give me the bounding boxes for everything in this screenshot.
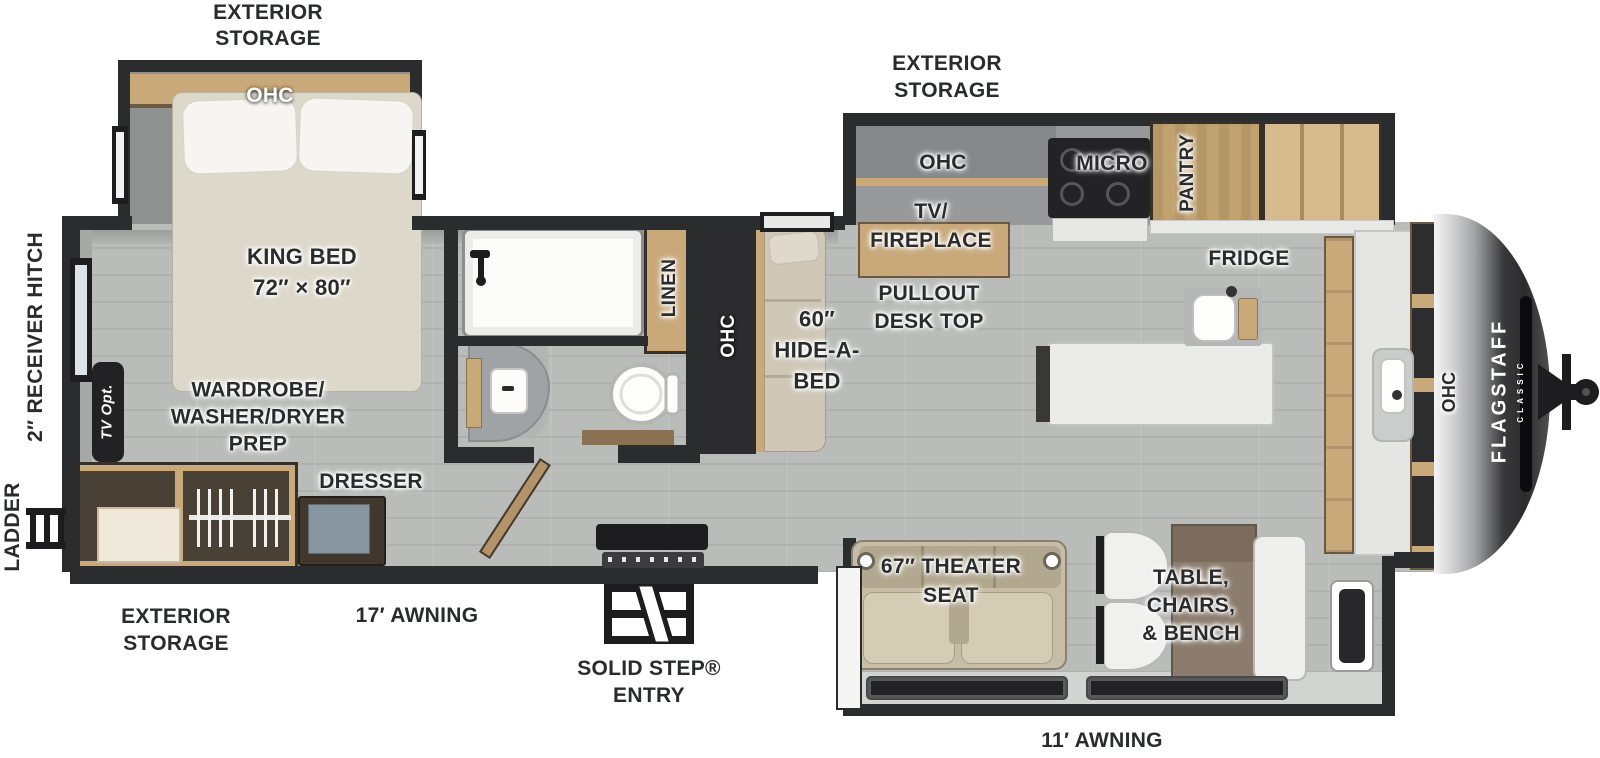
floorplan-diagram: EXTERIOR STORAGE EXTERIOR STORAGE 2″ REC…	[0, 0, 1600, 758]
label-micro: MICRO	[1076, 151, 1148, 177]
table-leaf	[1173, 526, 1255, 562]
sofa-pillow	[768, 230, 821, 265]
outside-griddle	[596, 524, 714, 570]
toilet	[608, 362, 682, 426]
label-hall-ohc: OHC	[717, 314, 741, 357]
label-ladder: LADDER	[0, 482, 26, 571]
bath-right-wall	[686, 222, 700, 463]
island-end-panel	[1036, 346, 1050, 422]
label-receiver-hitch: 2″ RECEIVER HITCH	[23, 232, 49, 442]
label-tv-opt: TV Opt.	[99, 384, 118, 439]
fridge-door-seam	[1340, 124, 1344, 220]
wardrobe-washer-dryer-prep	[64, 462, 298, 570]
label-front-ohc: OHC	[1438, 372, 1461, 413]
dinette-slide-window	[1086, 676, 1288, 700]
label-hide-a-bed: 60″ HIDE-A- BED	[774, 304, 859, 397]
label-exterior-storage-kitchen: EXTERIOR STORAGE	[892, 50, 1002, 104]
label-tv-fireplace: TV/ FIREPLACE	[870, 197, 992, 255]
dinette-slide-window	[866, 676, 1068, 700]
bath-bottom-wall-left	[450, 447, 534, 463]
hitch-icon	[1538, 352, 1600, 432]
vanity-sink	[490, 368, 528, 414]
label-fridge: FRIDGE	[1208, 246, 1289, 272]
kitchen-ohc-shelf	[856, 178, 1056, 186]
shower-head-icon	[468, 248, 494, 288]
hall-window	[760, 212, 834, 232]
label-solid-step-entry: SOLID STEP® ENTRY	[577, 655, 721, 709]
front-faucet-icon	[1392, 390, 1402, 400]
dresser-top-panel	[308, 504, 370, 554]
label-dresser: DRESSER	[319, 469, 423, 495]
label-dinette: TABLE, CHAIRS, & BENCH	[1142, 564, 1240, 648]
fridge-cabinet	[1262, 121, 1382, 223]
hangers	[253, 489, 281, 547]
fridge-door-seam	[1300, 124, 1304, 220]
bedroom-slide-window	[412, 130, 426, 200]
dinette-end-window	[1330, 580, 1374, 672]
burner	[1106, 182, 1130, 206]
label-king-bed: KING BED 72″ × 80″	[247, 241, 357, 303]
griddle-holes	[608, 557, 698, 562]
kitchen-island	[1048, 342, 1274, 426]
chair-frame	[1096, 606, 1104, 664]
label-wardrobe: WARDROBE/ WASHER/DRYER PREP	[171, 377, 345, 458]
brand-flagstaff: FLAGSTAFF	[1488, 319, 1513, 463]
vanity-faucet-icon	[502, 386, 514, 391]
sofa-cushion-seam	[765, 299, 821, 302]
label-pullout-desk: PULLOUT DESK TOP	[874, 280, 983, 336]
label-kitchen-ohc: OHC	[919, 150, 967, 176]
dinette-bench	[1253, 535, 1307, 681]
label-theater-seat: 67″ THEATER SEAT	[881, 552, 1021, 610]
pillow	[298, 97, 415, 175]
front-counter-base	[1324, 236, 1354, 554]
label-exterior-storage-bedroom: EXTERIOR STORAGE	[213, 0, 323, 52]
label-exterior-storage-rear: EXTERIOR STORAGE	[121, 603, 231, 657]
oven-front	[1052, 218, 1148, 242]
entry-steps-icon	[602, 584, 696, 644]
island-sink	[1192, 294, 1236, 342]
entry-door	[836, 566, 862, 710]
burner	[1060, 182, 1084, 206]
bedroom-bath-wall	[444, 222, 458, 463]
front-prep-sink	[1380, 358, 1406, 414]
pantry-cabinet	[1150, 121, 1262, 225]
sofa-frame	[756, 226, 764, 452]
label-awning-17: 17′ AWNING	[356, 603, 479, 629]
bath-partition-wall	[456, 336, 648, 346]
toilet-shelf	[582, 430, 674, 445]
cutting-board	[1238, 298, 1258, 340]
rear-wall-window	[70, 258, 92, 382]
laundry-basket	[97, 507, 181, 563]
chair-frame	[1096, 536, 1104, 594]
bedroom-slide-window	[112, 126, 128, 204]
label-linen: LINEN	[658, 259, 682, 318]
ladder-icon	[26, 498, 70, 560]
cupholder-icon	[1043, 552, 1061, 570]
dresser	[298, 496, 386, 566]
label-pantry: PANTRY	[1176, 134, 1200, 212]
hangers	[197, 489, 235, 547]
vanity-ledge	[466, 358, 482, 428]
island-faucet-icon	[1226, 286, 1237, 297]
brand-classic: CLASSIC	[1516, 359, 1526, 422]
label-awning-11: 11′ AWNING	[1041, 728, 1163, 754]
label-bedroom-ohc: OHC	[246, 83, 294, 109]
